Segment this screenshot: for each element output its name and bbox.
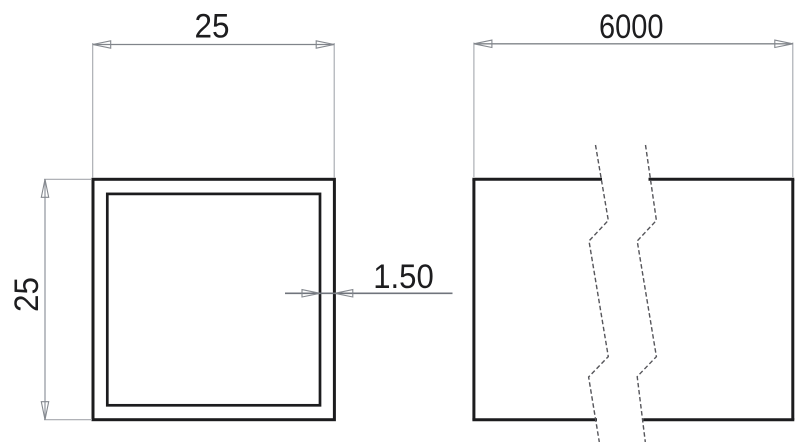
svg-text:1.50: 1.50 xyxy=(373,258,434,296)
svg-text:25: 25 xyxy=(195,8,230,46)
svg-text:6000: 6000 xyxy=(599,8,664,46)
svg-text:25: 25 xyxy=(8,277,46,312)
